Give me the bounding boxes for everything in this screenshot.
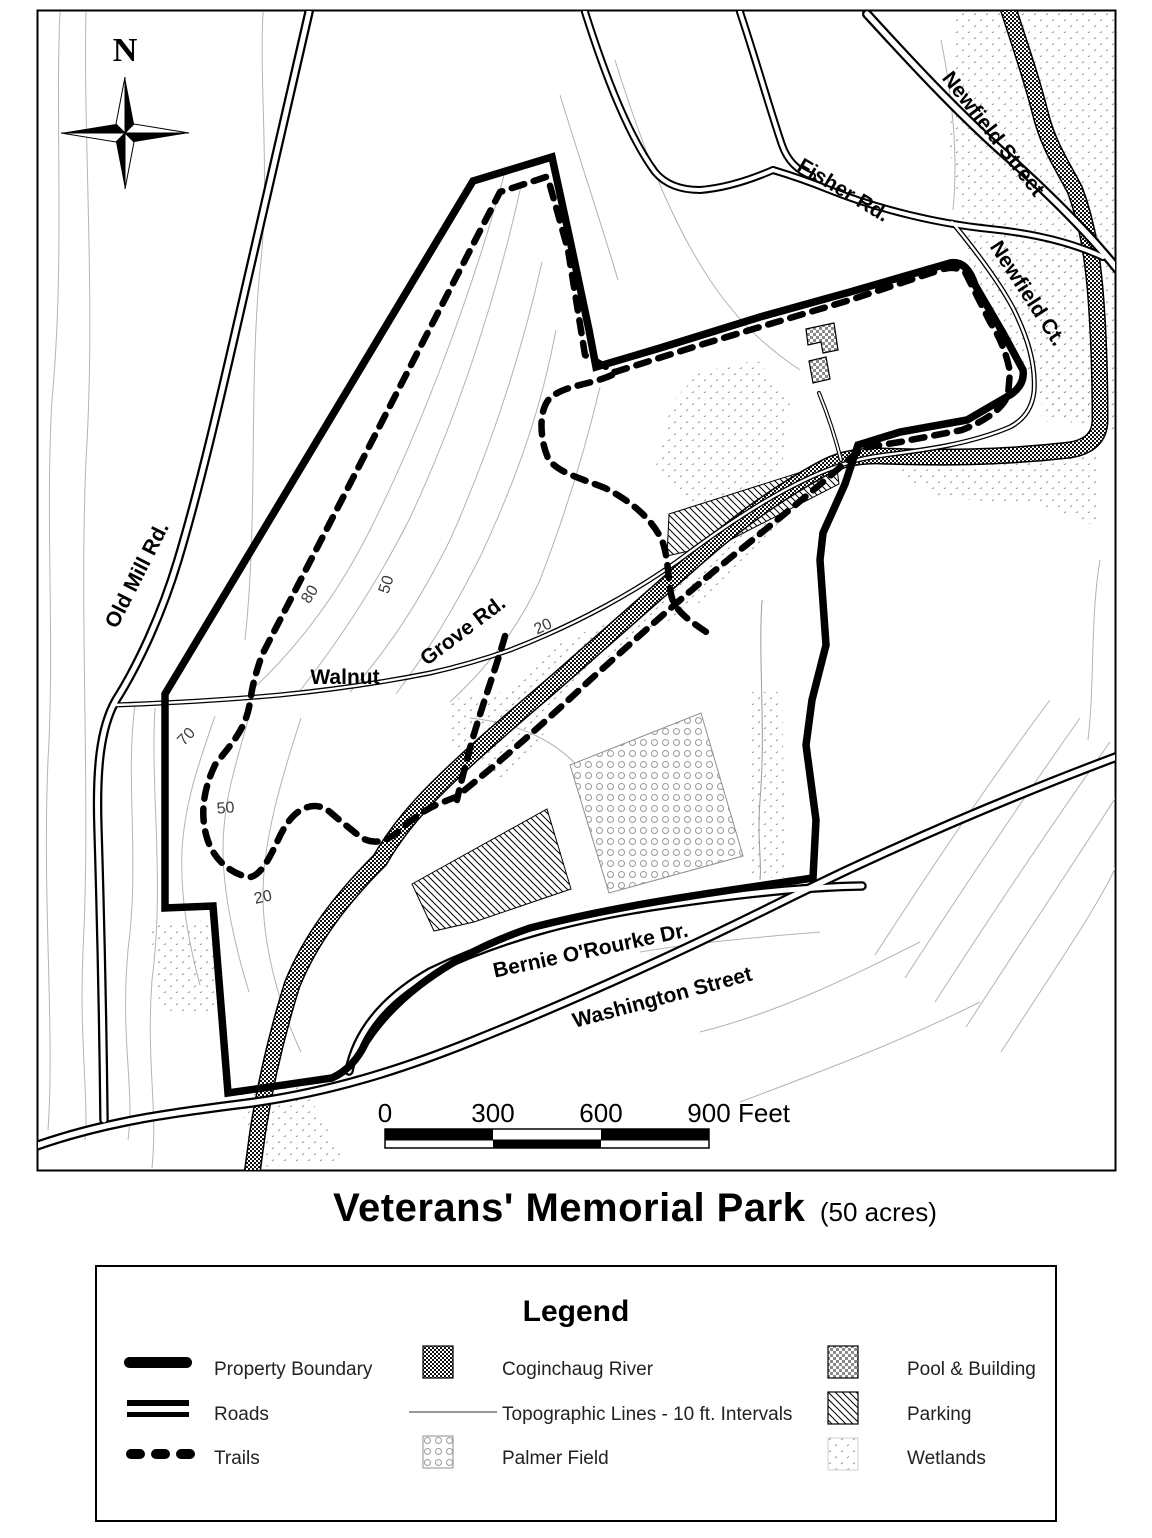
legend-title: Legend <box>97 1295 1055 1329</box>
label-walnut: Walnut <box>310 666 379 689</box>
legend-label-roads: Roads <box>214 1404 269 1426</box>
legend-swatch-pool-building <box>827 1345 859 1379</box>
legend-swatch-parking <box>827 1391 859 1425</box>
legend-label-topographic-lines: Topographic Lines - 10 ft. Intervals <box>502 1404 792 1426</box>
pool-shape <box>809 357 830 383</box>
scale-600: 600 <box>579 1098 622 1128</box>
compass-n-label: N <box>113 32 138 69</box>
legend-swatch-coginchaug-river <box>422 1345 454 1379</box>
contour-label-50-lower: 50 <box>216 799 235 817</box>
legend-label-trails: Trails <box>214 1448 260 1470</box>
legend-label-property-boundary: Property Boundary <box>214 1359 372 1381</box>
map-title-text: Veterans' Memorial Park <box>333 1186 805 1230</box>
legend-label-wetlands: Wetlands <box>907 1448 986 1470</box>
map-canvas: N Old Mill Rd. Fisher Rd. Newfield Stree… <box>0 0 1152 1180</box>
page: N Old Mill Rd. Fisher Rd. Newfield Stree… <box>0 0 1152 1538</box>
legend-swatch-trails <box>126 1446 195 1464</box>
legend-label-coginchaug-river: Coginchaug River <box>502 1359 653 1381</box>
legend-swatch-topographic-lines <box>409 1411 497 1413</box>
legend-label-parking: Parking <box>907 1404 971 1426</box>
map-title: Veterans' Memorial Park (50 acres) <box>0 1186 1152 1231</box>
scale-300: 300 <box>471 1098 514 1128</box>
contour-label-20-lower: 20 <box>253 887 274 907</box>
map-title-acres: (50 acres) <box>820 1197 937 1227</box>
scale-0: 0 <box>378 1098 392 1128</box>
scale-900: 900 <box>687 1098 730 1128</box>
legend-label-pool-building: Pool & Building <box>907 1359 1036 1381</box>
scale-unit: Feet <box>738 1098 791 1128</box>
legend-box: Legend Property Boundary Roads Trails Co… <box>95 1265 1057 1522</box>
legend-swatch-property-boundary <box>124 1357 192 1368</box>
legend-swatch-palmer-field <box>422 1435 454 1469</box>
legend-swatch-wetlands <box>827 1437 859 1471</box>
legend-label-palmer-field: Palmer Field <box>502 1448 609 1470</box>
legend-swatch-roads <box>127 1400 189 1417</box>
